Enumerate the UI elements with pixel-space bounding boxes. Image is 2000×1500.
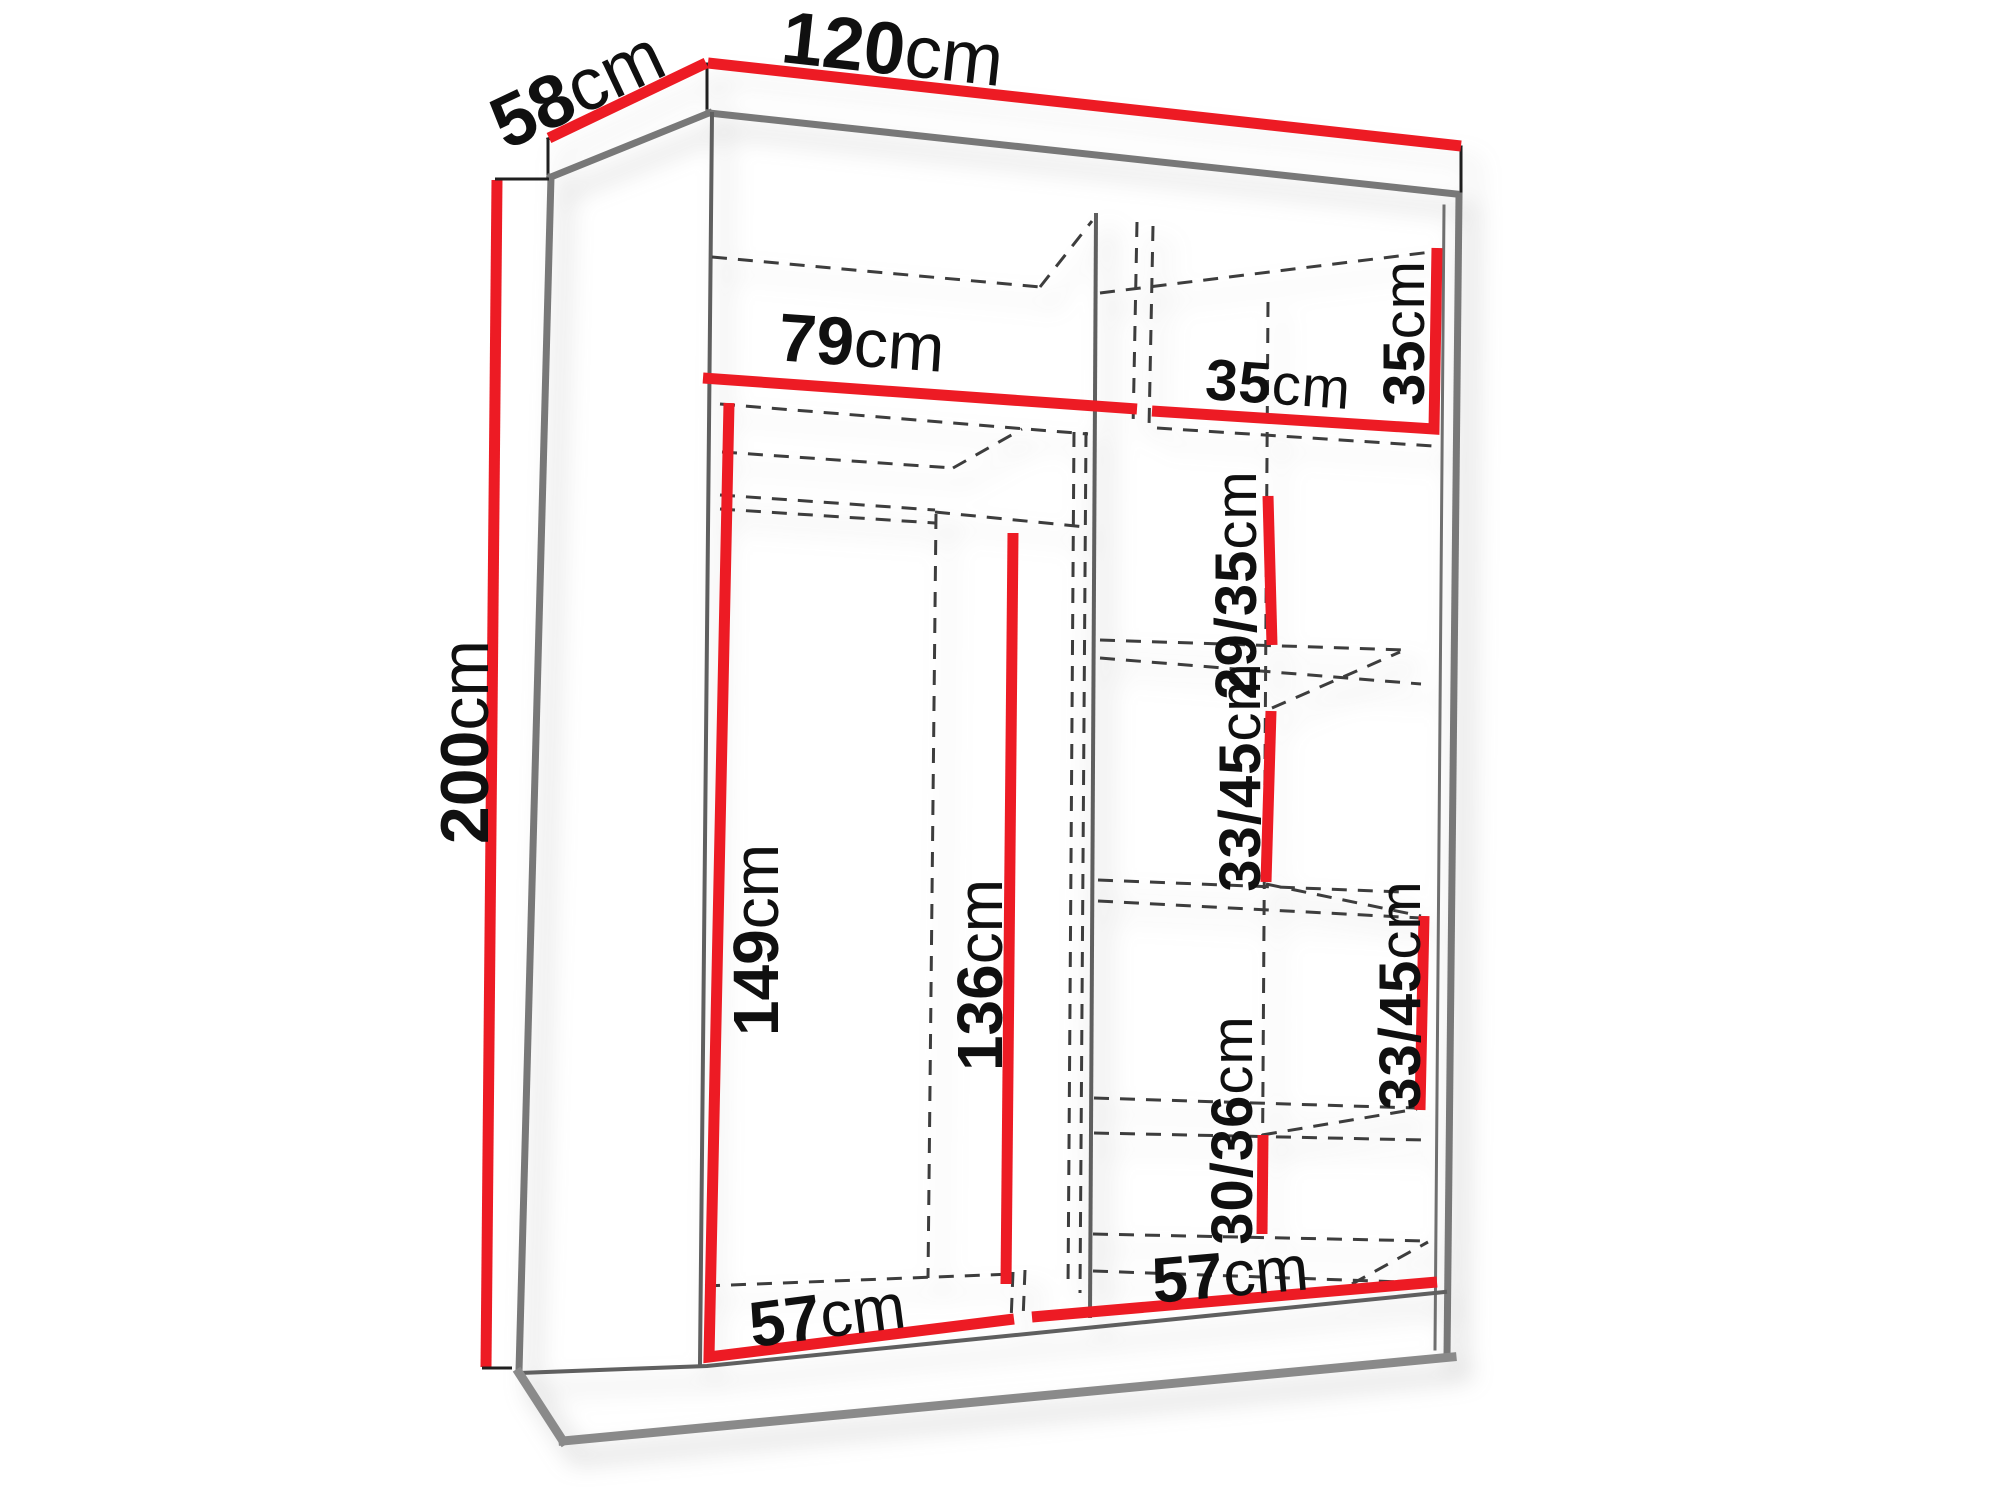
center-divider — [1090, 215, 1096, 1316]
diagram-canvas: 58cm 120cm 200cm 79cm 35cm 35cm 29/35cm … — [0, 0, 2000, 1500]
label-136: 136cm — [944, 879, 1016, 1071]
label-35-width: 35cm — [1203, 347, 1353, 422]
label-height-200: 200cm — [427, 640, 503, 844]
label-35-height: 35cm — [1372, 260, 1437, 406]
plinth-left-corner — [519, 1373, 563, 1441]
label-149: 149cm — [720, 844, 792, 1036]
label-33-45-b: 33/45cm — [1368, 880, 1433, 1109]
left-outer-edge — [519, 177, 551, 1371]
top-shelf-underside-edge — [720, 404, 1088, 434]
label-width-120: 120cm — [778, 0, 1008, 102]
carcass-bottom-edge — [519, 1292, 1445, 1373]
dimension-labels: 58cm 120cm 200cm 79cm 35cm 35cm 29/35cm … — [427, 0, 1437, 1361]
label-30-36: 30/36cm — [1200, 1015, 1265, 1244]
divider-top-hidden-edge-1 — [1133, 222, 1137, 429]
rod-to-divider-line — [935, 512, 1086, 527]
top-band-front-edge — [709, 113, 1456, 194]
label-79: 79cm — [776, 299, 947, 386]
shelf1-depth-diagonal — [1272, 652, 1400, 708]
back-corner-diagonal — [953, 429, 1022, 468]
divider-foot-hidden-edge-2 — [1023, 1270, 1025, 1320]
left-back-corner-vertical — [928, 514, 936, 1278]
divider-hidden-edge-1 — [1068, 432, 1074, 1290]
dimension-lines — [482, 63, 1461, 1368]
right-outer-edge — [1447, 196, 1459, 1357]
label-33-45-a: 33/45cm — [1208, 662, 1273, 891]
label-57-right: 57cm — [1149, 1231, 1311, 1316]
divider-top-hidden-edge-2 — [1149, 226, 1153, 428]
right-floor-depth-diagonal — [1352, 1242, 1428, 1284]
hanging-rod-bottom-line — [720, 509, 935, 523]
ceiling-back-edge — [712, 257, 1040, 287]
cabinet-line-art — [519, 64, 1461, 1441]
ceiling-depth-diagonal — [1040, 221, 1092, 287]
wardrobe-dimension-diagram: 58cm 120cm 200cm 79cm 35cm 35cm 29/35cm … — [0, 0, 2000, 1500]
shelf3-depth-diagonal — [1262, 1109, 1417, 1135]
plinth-bottom-edge — [563, 1357, 1452, 1441]
hanging-rod-top-line — [720, 495, 935, 510]
back-wall-top-edge — [722, 452, 953, 468]
label-depth-58: 58cm — [478, 13, 677, 165]
divider-hidden-edge-2 — [1080, 432, 1086, 1293]
